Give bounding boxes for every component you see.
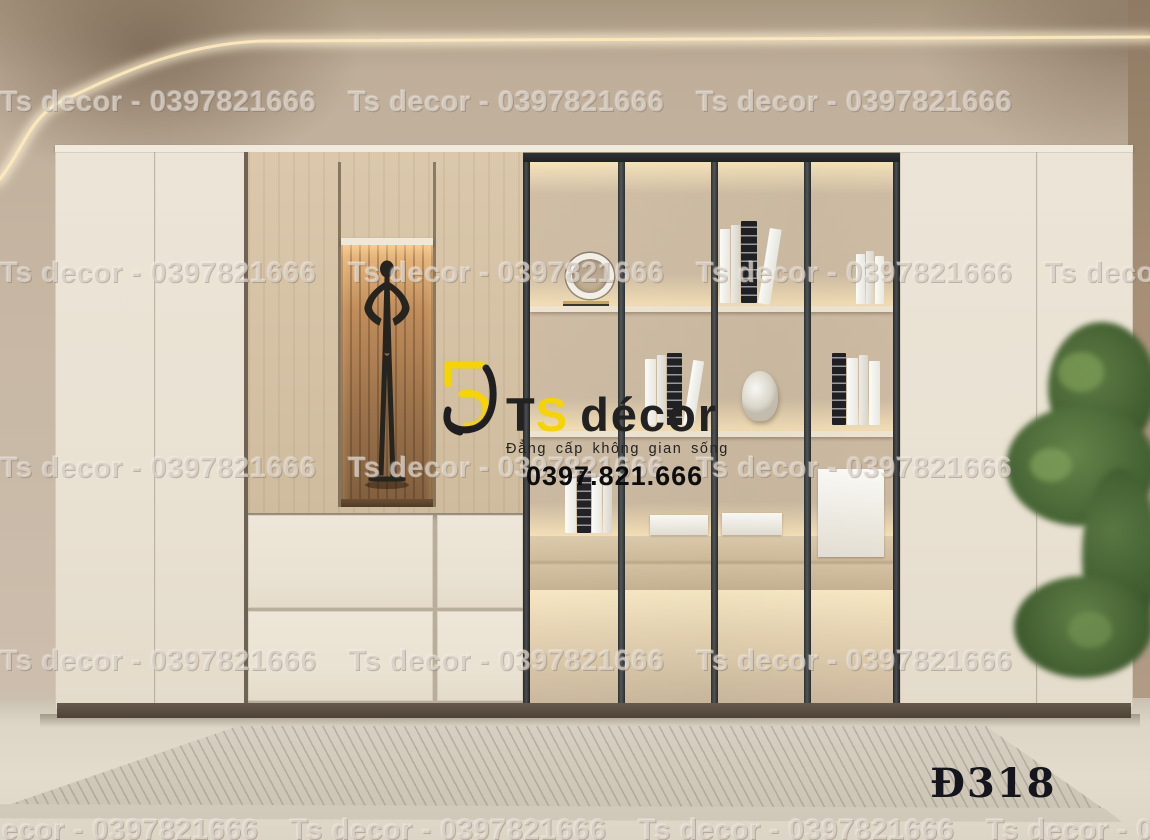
watermark-text: Ts decor - 0397821666 [1044,257,1150,290]
brand-logo-block: TSdécor Đẳng cấp không gian sống 0397.82… [436,354,736,492]
watermark-text: Ts decor - 0397821666 [696,86,1002,119]
cabinet-top-edge [55,145,1133,152]
watermark-text: Ts decor - 0397821666 [348,86,654,119]
brand-phone: 0397.821.666 [526,461,736,492]
watermark-text: Ts decor - 0397821666 [986,814,1150,840]
cabinet-plinth [57,703,1131,718]
niche-shelf [341,238,433,245]
watermark-text: Ts decor - 0397821666 [0,86,306,119]
watermark-text: Ts decor - 0397821666 [638,814,944,840]
niche-upper-compartment [341,162,433,238]
watermark-row: Ts decor - 0397821666 Ts decor - 0397821… [0,814,1150,840]
watermark-text: Ts decor - 0397821666 [696,645,1002,678]
door-seam [154,152,156,710]
watermark-row: Ts decor - 0397821666 Ts decor - 0397821… [0,645,1150,678]
watermark-text: Ts decor - 0397821666 [696,452,1002,485]
watermark-text: Ts decor - 0397821666 [696,257,1002,290]
brand-tagline: Đẳng cấp không gian sống [506,441,736,457]
watermark-row: Ts decor - 0397821666 Ts decor - 0397821… [0,257,1150,290]
interior-render: Đ318 [0,0,1150,840]
drawer-front [248,515,433,608]
glass-frame-top [523,153,900,162]
drawer-front [437,515,523,608]
watermark-text: Ts decor - 0397821666 [0,452,306,485]
watermark-text: Ts decor - 0397821666 [348,645,654,678]
watermark-text: Ts decor - 0397821666 [348,257,654,290]
watermark-text: Ts decor - 0397821666 [290,814,596,840]
watermark-text: Ts decor - 0397821666 [0,645,306,678]
ts-decor-monogram-icon [436,354,498,436]
glass-door-frame [893,153,900,705]
niche-base [341,499,433,507]
brand-name: TSdécor [506,394,718,436]
watermark-text: Ts decor - 0397821666 [0,257,306,290]
product-code-label: Đ318 [930,760,1056,807]
left-wardrobe-doors [55,152,245,710]
watermark-row: Ts decor - 0397821666 Ts decor - 0397821… [0,86,1150,119]
watermark-text: Ts decor - 0397821666 [0,814,248,840]
